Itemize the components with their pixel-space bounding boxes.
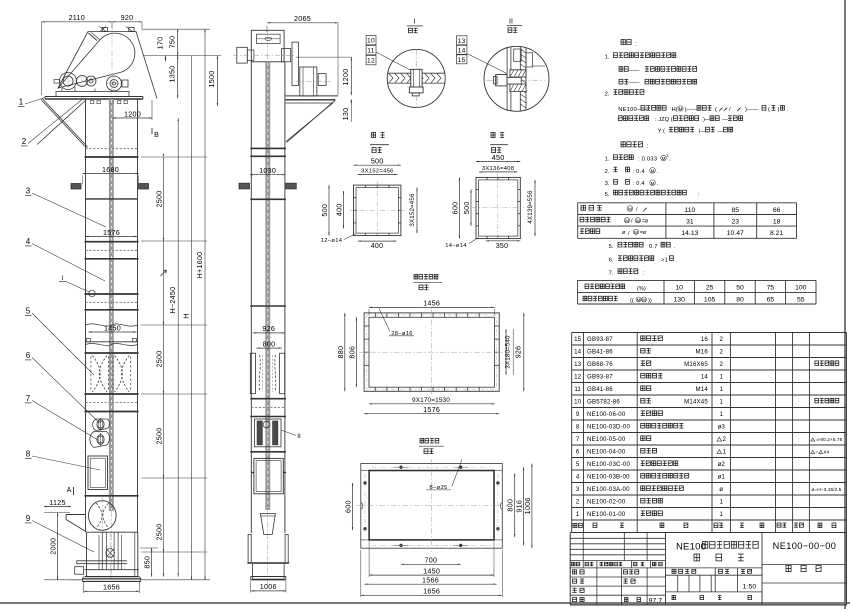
svg-text:10: 10 [574,398,581,405]
svg-text:9: 9 [576,411,580,418]
svg-text:8.21: 8.21 [770,230,783,237]
svg-text:5.: 5. [609,244,614,250]
svg-text:850: 850 [143,556,152,569]
svg-text:1: 1 [576,511,580,518]
svg-text:1656: 1656 [103,583,120,592]
svg-text:=H/0.2+5.75: =H/0.2+5.75 [815,437,842,443]
svg-text:8: 8 [576,423,580,430]
svg-text:800: 800 [263,339,276,348]
svg-text:11: 11 [367,48,374,55]
svg-text:3: 3 [576,486,580,493]
svg-text:M: M [636,218,640,223]
svg-text:2065: 2065 [294,14,311,23]
svg-text:B: B [154,132,159,139]
svg-text:6: 6 [576,448,580,455]
svg-text:5: 5 [26,307,31,316]
svg-text:I: I [414,19,416,26]
svg-text:926: 926 [515,346,522,358]
svg-text:NE100-06-00: NE100-06-00 [587,411,626,418]
svg-text:1:50: 1:50 [743,584,757,591]
svg-text:5.: 5. [605,192,610,198]
svg-text:M: M [634,230,638,235]
svg-text:105: 105 [704,297,716,304]
svg-text:H: H [181,313,190,318]
svg-text:13: 13 [574,361,581,368]
svg-text:1200: 1200 [124,109,141,118]
svg-text:500: 500 [462,201,471,214]
svg-text:)——: )—— [745,107,759,113]
svg-text:170: 170 [155,37,164,50]
svg-text:NE100-03D-00: NE100-03D-00 [587,423,630,430]
svg-text:Y (: Y ( [658,129,665,135]
svg-text:2110: 2110 [69,13,85,22]
svg-text:6.: 6. [609,258,614,264]
svg-text:12: 12 [367,58,375,65]
svg-text:M14X45: M14X45 [684,398,708,405]
svg-text:M: M [651,168,655,173]
svg-text:31: 31 [686,219,694,226]
svg-text:0.7: 0.7 [649,244,658,250]
svg-text:6: 6 [26,351,31,360]
svg-text:11: 11 [574,386,581,393]
svg-text:9X170=1530: 9X170=1530 [412,397,450,404]
svg-text:GB41-86: GB41-86 [587,348,613,355]
svg-text:X4: X4 [823,449,829,455]
svg-text:NE100−00−00: NE100−00−00 [773,541,837,551]
svg-text:9: 9 [26,514,31,523]
svg-text:=: = [815,450,818,455]
svg-text:50: 50 [736,285,744,292]
svg-text:—: — [722,117,728,123]
svg-text:1: 1 [719,386,723,393]
svg-text:H(: H( [672,107,678,113]
svg-text:14−ø14: 14−ø14 [445,243,467,249]
svg-text:ø3: ø3 [718,423,726,430]
svg-text:1: 1 [719,498,723,505]
svg-text:12−ø14: 12−ø14 [321,238,343,244]
svg-text:3.: 3. [605,181,610,187]
svg-text:II: II [297,433,301,440]
svg-text:12: 12 [574,373,581,380]
svg-text:M14: M14 [696,386,709,393]
svg-text:1456: 1456 [423,299,440,308]
svg-text:GB41-86: GB41-86 [587,386,613,393]
svg-text:NE100-03A-00: NE100-03A-00 [587,486,630,493]
svg-text:M: M [679,107,683,112]
svg-text:700: 700 [425,556,438,565]
svg-text:2.: 2. [605,92,610,98]
svg-text:ø1: ø1 [718,473,726,480]
svg-text:800: 800 [506,499,515,512]
svg-text:750: 750 [167,36,176,49]
svg-text:130: 130 [674,297,686,304]
svg-text:80: 80 [736,297,744,304]
svg-text:ø: ø [719,486,723,493]
svg-text:15: 15 [574,336,581,343]
svg-text:400: 400 [371,243,383,250]
svg-text:: JZQ (: : JZQ ( [655,117,673,123]
svg-text:NE100-01-00: NE100-01-00 [587,511,626,518]
svg-text:1450: 1450 [423,566,440,575]
svg-text:1656: 1656 [423,587,440,596]
svg-text:2500: 2500 [154,524,163,541]
svg-text:NE100-03C-00: NE100-03C-00 [587,461,630,468]
svg-text:>1: >1 [661,258,668,264]
svg-text:2500: 2500 [154,191,163,208]
svg-text:3X152=456: 3X152=456 [361,169,394,175]
svg-text:7: 7 [576,436,580,443]
svg-text:II: II [509,19,513,26]
svg-text:NE100: NE100 [676,542,706,553]
svg-text:1: 1 [719,398,723,405]
svg-text:1: 1 [722,448,726,455]
svg-text:2.: 2. [605,169,610,175]
svg-text:GB5782-86: GB5782-86 [587,398,620,405]
svg-text:7.: 7. [609,271,614,277]
svg-text:1350: 1350 [167,66,176,83]
svg-text:M: M [662,156,666,161]
svg-text:1.: 1. [605,157,610,163]
svg-text:(%): (%) [637,286,646,292]
svg-text:1125: 1125 [49,498,65,507]
svg-text:350: 350 [496,243,508,250]
svg-text:75: 75 [767,285,775,292]
svg-text:600: 600 [451,202,460,215]
svg-text:1030: 1030 [259,166,276,175]
svg-text:M: M [625,218,629,223]
svg-text:1006: 1006 [260,582,277,591]
svg-text:NE100-03B-00: NE100-03B-00 [587,473,630,480]
svg-text:M: M [628,207,632,212]
svg-text:920: 920 [121,13,134,22]
svg-text:1450: 1450 [104,323,121,332]
svg-text:)): )) [648,298,652,304]
svg-text:2000: 2000 [49,538,58,555]
svg-text:1500: 1500 [207,71,216,88]
svg-text:4X139=556: 4X139=556 [527,190,534,224]
svg-text:13: 13 [458,38,466,45]
svg-text:M: M [642,298,646,303]
svg-text:——: —— [629,68,641,74]
svg-text:): ) [778,107,780,113]
svg-text:55: 55 [797,297,805,304]
svg-text:14.13: 14.13 [681,230,698,237]
svg-text:4: 4 [26,237,31,246]
svg-text:2500: 2500 [154,351,163,368]
svg-text:400: 400 [335,203,344,216]
svg-text:65: 65 [767,297,775,304]
svg-text:—: — [718,129,724,135]
svg-text:2: 2 [576,498,580,505]
svg-text:600: 600 [344,500,353,513]
svg-text:100: 100 [795,285,807,292]
svg-text:NE100-02-00: NE100-02-00 [587,498,626,505]
svg-text:H−2450: H−2450 [168,287,177,314]
svg-text:110: 110 [684,207,695,214]
svg-text:1: 1 [19,98,24,107]
svg-text:1: 1 [719,511,723,518]
svg-text:M16: M16 [696,348,709,355]
svg-text:(: ( [768,107,770,113]
svg-text:)——: )—— [685,107,699,113]
svg-text:85: 85 [732,207,740,214]
svg-text:806: 806 [347,346,356,359]
svg-text:2: 2 [719,336,723,343]
svg-text:3X180=540: 3X180=540 [504,335,511,369]
svg-text:2: 2 [719,348,723,355]
svg-text:=ø: =ø [640,230,647,236]
svg-text:500: 500 [320,204,329,217]
svg-text:1: 1 [719,411,723,418]
svg-text:1566: 1566 [422,576,439,585]
svg-text:I: I [62,275,64,282]
svg-text:4: 4 [576,473,580,480]
svg-text:GB68-76: GB68-76 [587,361,613,368]
svg-text:14: 14 [574,348,581,355]
svg-text:3X136=408: 3X136=408 [482,166,515,172]
svg-text:1200: 1200 [341,69,350,86]
svg-text:: 0.4: : 0.4 [633,169,646,175]
svg-text:25: 25 [706,285,714,292]
svg-text:ø2: ø2 [718,461,726,468]
svg-text:1680: 1680 [102,165,119,174]
svg-text:14: 14 [458,47,466,54]
svg-text:——: —— [629,80,641,86]
svg-text:18: 18 [773,219,781,226]
svg-text:1576: 1576 [103,228,120,237]
svg-text:A: A [67,487,72,494]
svg-text:(: ( [715,107,717,113]
svg-text:M16X65: M16X65 [684,361,708,368]
svg-text:3X152=456: 3X152=456 [409,193,416,227]
svg-text:10: 10 [367,38,375,45]
svg-text:1.: 1. [605,55,610,61]
svg-text:14: 14 [701,373,709,380]
svg-text:10.47: 10.47 [727,230,744,237]
svg-text:NE100-05-00: NE100-05-00 [587,436,626,443]
svg-text:16: 16 [701,336,709,343]
svg-text:500: 500 [371,157,384,166]
svg-text:5: 5 [576,461,580,468]
svg-text:H+1600: H+1600 [195,252,204,279]
svg-text:880: 880 [336,346,345,359]
svg-text:NE100-04-00: NE100-04-00 [587,448,626,455]
svg-text:: 0.033: : 0.033 [638,157,657,163]
svg-text:2500: 2500 [154,428,163,445]
svg-text:130: 130 [341,108,350,121]
svg-text:8: 8 [26,450,31,459]
svg-text:2: 2 [719,361,723,368]
svg-text:15: 15 [458,57,466,64]
svg-text:1006: 1006 [523,497,532,514]
svg-text:M: M [651,181,655,186]
svg-text:M: M [637,298,641,303]
svg-text:: 0.4: : 0.4 [633,181,646,187]
svg-text:ø=H−3.15/2.5: ø=H−3.15/2.5 [811,487,841,493]
svg-text:7: 7 [26,394,31,403]
svg-text:66: 66 [773,207,781,214]
svg-text:1576: 1576 [423,405,440,414]
svg-text:926: 926 [262,324,275,333]
svg-text:GB93-87: GB93-87 [587,373,613,380]
svg-text:23: 23 [732,219,740,226]
svg-text:97.7: 97.7 [649,597,663,604]
svg-text:2: 2 [22,137,27,146]
svg-text:((: (( [630,298,634,304]
svg-text:3: 3 [26,187,31,196]
svg-text:2: 2 [722,436,726,443]
svg-text:10: 10 [675,285,683,292]
svg-text:GB93-87: GB93-87 [587,336,613,343]
svg-text:450: 450 [492,153,505,162]
svg-text:=ø: =ø [642,219,649,225]
svg-text:1: 1 [719,373,723,380]
